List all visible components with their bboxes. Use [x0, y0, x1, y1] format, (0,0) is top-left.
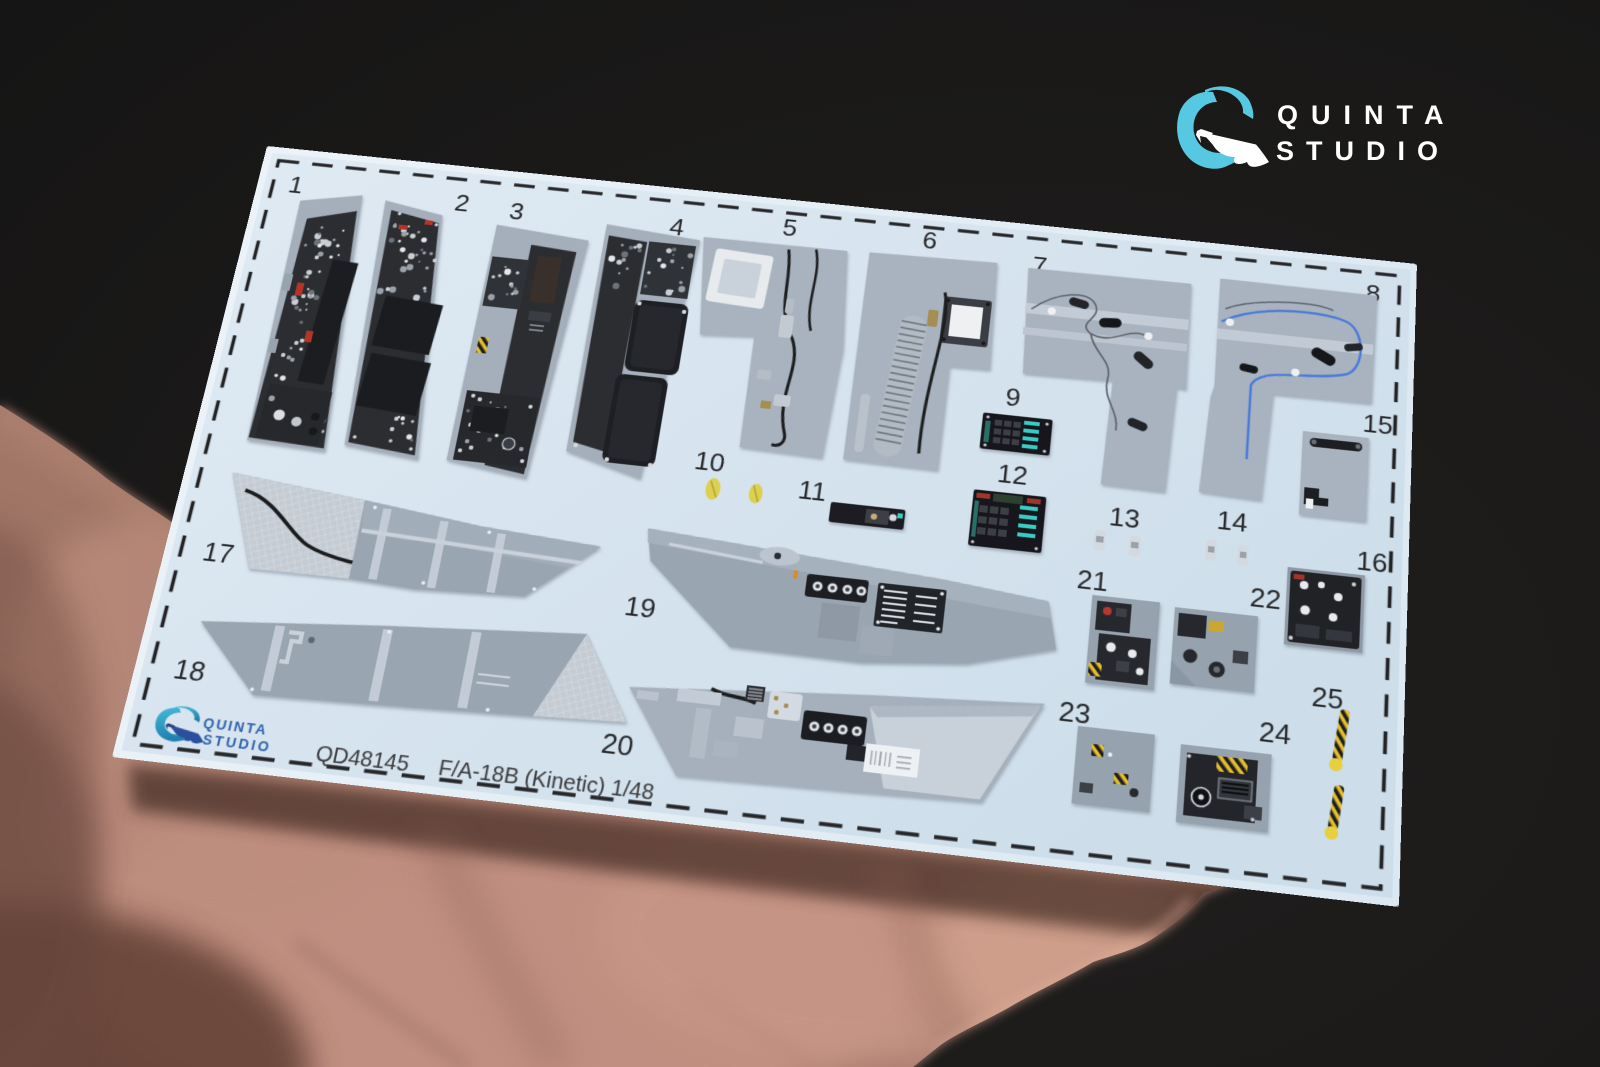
- svg-text:STUDIO: STUDIO: [1276, 136, 1450, 166]
- svg-text:13: 13: [1108, 502, 1141, 534]
- svg-text:11: 11: [796, 476, 828, 508]
- svg-text:22: 22: [1249, 583, 1282, 616]
- svg-text:19: 19: [622, 591, 658, 625]
- svg-text:23: 23: [1057, 696, 1091, 731]
- svg-text:24: 24: [1258, 716, 1292, 751]
- svg-text:15: 15: [1362, 410, 1393, 441]
- svg-text:QUINTA: QUINTA: [1277, 100, 1457, 130]
- svg-text:6: 6: [921, 227, 939, 255]
- svg-text:9: 9: [1004, 383, 1022, 412]
- svg-text:21: 21: [1076, 565, 1109, 598]
- svg-text:16: 16: [1356, 546, 1388, 579]
- svg-text:25: 25: [1311, 682, 1344, 717]
- svg-text:14: 14: [1216, 506, 1248, 539]
- svg-text:20: 20: [599, 728, 636, 763]
- svg-text:10: 10: [692, 447, 726, 479]
- svg-text:12: 12: [996, 459, 1029, 491]
